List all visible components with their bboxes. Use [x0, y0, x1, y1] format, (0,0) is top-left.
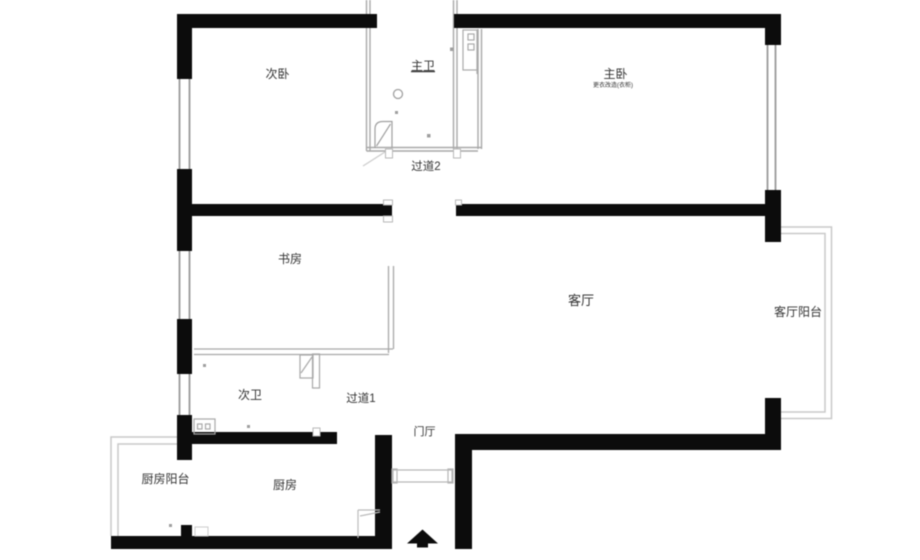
- svg-text:次卫: 次卫: [238, 388, 262, 402]
- svg-text:过道1: 过道1: [346, 391, 375, 405]
- svg-text:客厅: 客厅: [568, 293, 594, 308]
- svg-text:书房: 书房: [278, 251, 302, 266]
- svg-text:厨房: 厨房: [273, 477, 297, 492]
- svg-text:主卫: 主卫: [411, 59, 435, 73]
- svg-text:厨房阳台: 厨房阳台: [141, 471, 189, 486]
- svg-text:次卧: 次卧: [265, 67, 289, 81]
- svg-text:过道2: 过道2: [411, 159, 440, 173]
- svg-text:客厅阳台: 客厅阳台: [774, 304, 822, 319]
- svg-text:门厅: 门厅: [414, 424, 436, 438]
- svg-text:更衣改造(衣柜): 更衣改造(衣柜): [593, 81, 633, 89]
- svg-text:主卧: 主卧: [603, 67, 627, 81]
